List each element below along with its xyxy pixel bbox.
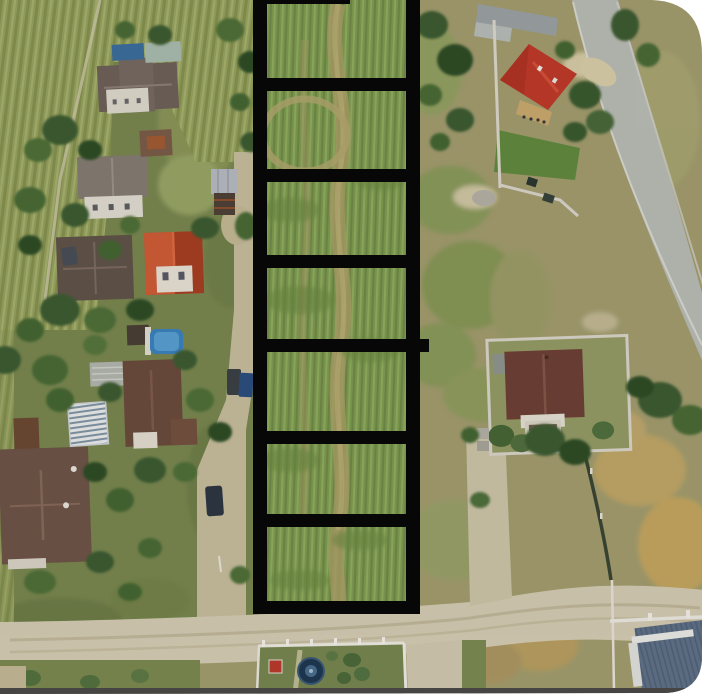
photo-bottom-edge: [0, 688, 713, 694]
plot-divider-3: [253, 255, 420, 268]
plot-divider-5: [253, 431, 420, 444]
aerial-photo: [0, 0, 713, 700]
parcel-2: [267, 78, 406, 169]
plot-overlay: [253, 0, 429, 614]
aerial-photo-canvas: [0, 0, 713, 700]
plot-divider-4: [253, 339, 420, 352]
plot-divider-1: [253, 78, 420, 91]
parcel-7: [267, 514, 406, 601]
plot-divider-2: [253, 169, 420, 182]
parcel-5: [267, 339, 406, 431]
parcel-1: [267, 0, 406, 78]
plot-divider-nub: [418, 339, 429, 352]
plot-divider-7: [253, 601, 420, 614]
plot-divider-top: [253, 0, 350, 4]
plot-divider-6: [253, 514, 420, 527]
